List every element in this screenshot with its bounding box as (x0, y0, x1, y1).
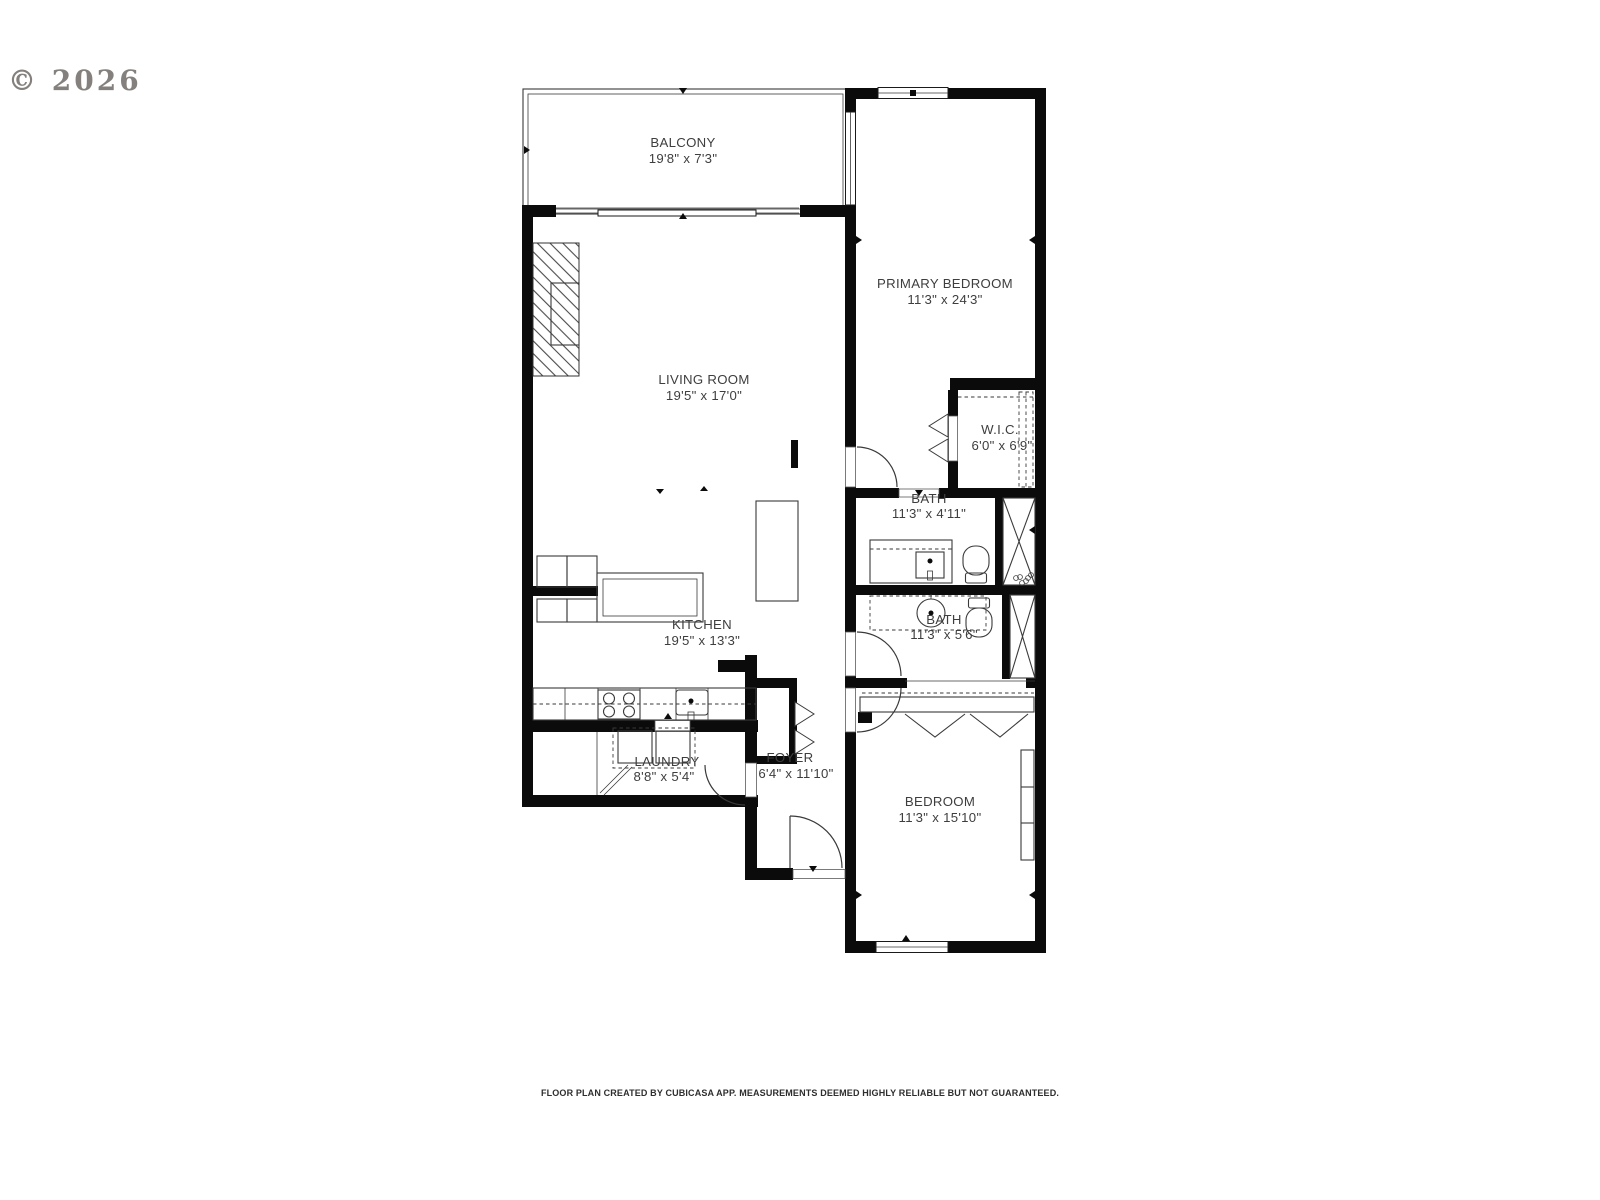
laundry-dims: 8'8" x 5'4" (634, 769, 695, 784)
foyer-label: FOYER (767, 750, 814, 765)
floor-plan-svg: BALCONY 19'8" x 7'3" PRIMARY BEDROOM 11'… (0, 0, 1600, 1200)
foyer-closet-door-icon (795, 702, 814, 726)
entry-door-arc (790, 816, 842, 868)
bath1-label: BATH (911, 491, 946, 506)
kitchen-dims: 19'5" x 13'3" (664, 633, 740, 648)
bath2-dims: 11'3" x 5'6" (910, 627, 978, 642)
sink-icon (916, 552, 944, 578)
balcony-dims: 19'8" x 7'3" (649, 151, 718, 166)
wic-door-icon (929, 439, 948, 462)
footer-disclaimer: FLOOR PLAN CREATED BY CUBICASA APP. MEAS… (0, 1088, 1600, 1098)
bedroom-south-window-icon (876, 942, 948, 953)
wic-label: W.I.C. (981, 422, 1019, 437)
primary-balcony-window-icon (846, 112, 856, 205)
foyer-dims: 6'4" x 11'10" (758, 766, 833, 781)
cabinet (567, 599, 597, 622)
closet-shelf (860, 697, 1034, 712)
kitchen-label: KITCHEN (672, 617, 732, 632)
cabinet (537, 556, 567, 587)
bedroom-shelves (1021, 750, 1034, 860)
cabinet (537, 599, 567, 622)
laundry-closet-door-icon (600, 765, 628, 793)
primary-door-arc (857, 447, 897, 487)
kitchen-peninsula (597, 573, 703, 622)
toilet-icon (963, 546, 989, 575)
vanity-counter (870, 540, 952, 583)
closet-bifold-icon (970, 714, 1028, 737)
bedroom-label: BEDROOM (905, 794, 975, 809)
bedroom-door-arc (857, 688, 901, 732)
kitchen-island (756, 501, 798, 601)
balcony-label: BALCONY (650, 135, 715, 150)
wic-door-icon (929, 414, 948, 437)
fireplace-hatch (533, 243, 579, 376)
bath2-door-arc (857, 632, 901, 676)
wic-dims: 6'0" x 6'9" (972, 438, 1033, 453)
bedroom-closet (860, 681, 1035, 860)
primary-bedroom-label: PRIMARY BEDROOM (877, 276, 1013, 291)
bath1-dims: 11'3" x 4'11" (892, 506, 966, 521)
bedroom-dims: 11'3" x 15'10" (899, 810, 982, 825)
cabinet (567, 556, 597, 587)
living-room-label: LIVING ROOM (658, 372, 749, 387)
closet-bifold-icon (905, 714, 965, 737)
floor-plan-page: © 2026 (0, 0, 1600, 1200)
laundry-label: LAUNDRY (635, 754, 700, 769)
primary-bedroom-dims: 11'3" x 24'3" (907, 292, 982, 307)
bath2-label: BATH (926, 612, 961, 627)
laundry-closet-door-icon (604, 767, 632, 795)
living-room-dims: 19'5" x 17'0" (666, 388, 742, 403)
